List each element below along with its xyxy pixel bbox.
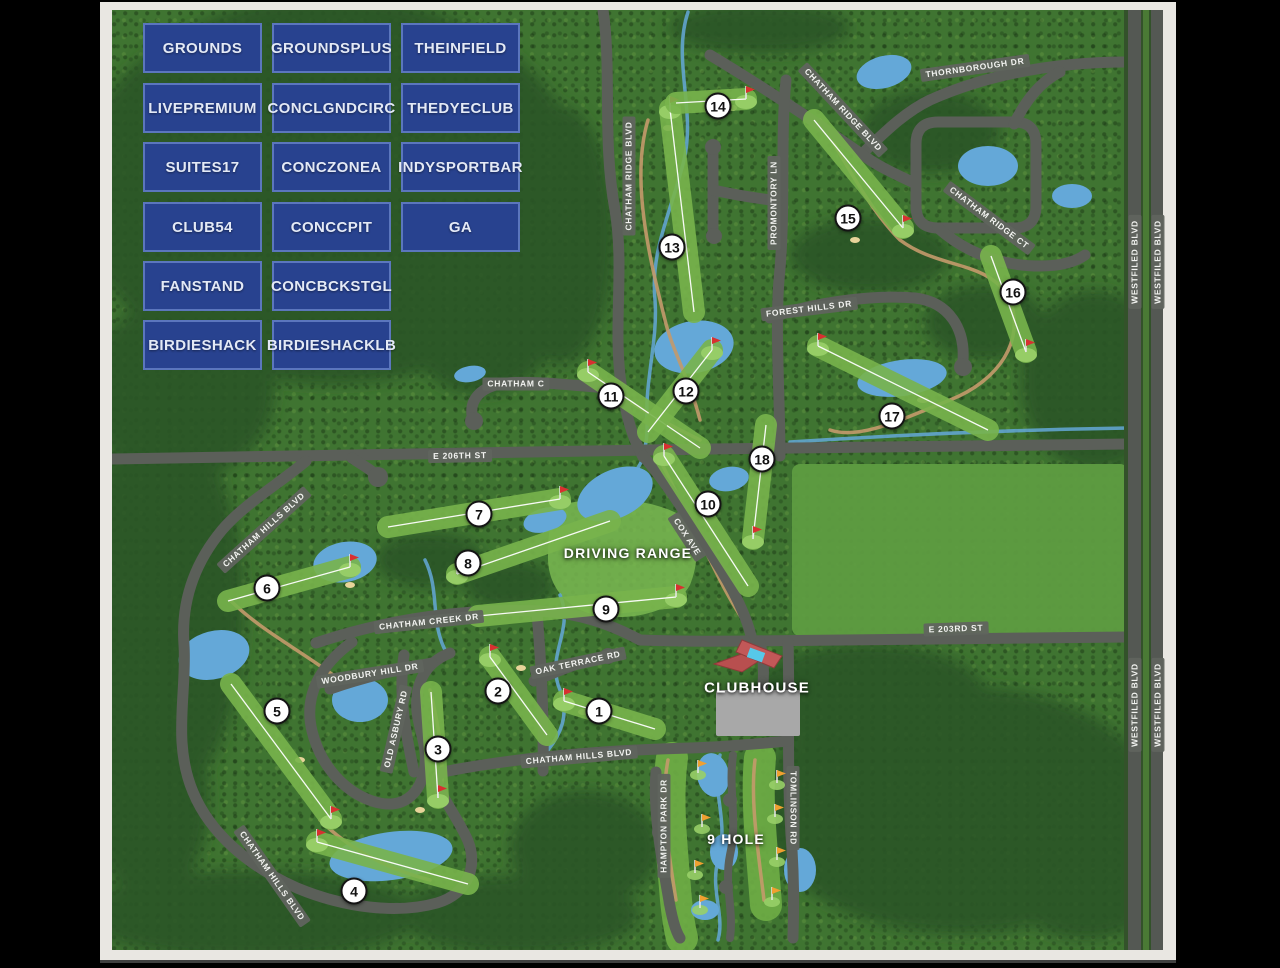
venue-button-concbckstgl[interactable]: CONCBCKSTGL	[272, 261, 391, 311]
hole-marker-5: 5	[264, 698, 291, 725]
hole-marker-13: 13	[659, 234, 686, 261]
hole-marker-3: 3	[425, 736, 452, 763]
road-label: E 203RD ST	[923, 621, 988, 636]
road-label: CHATHAM C	[482, 377, 549, 390]
page: { "page": { "background": "#000000", "fr…	[0, 0, 1280, 968]
driving-range-label: DRIVING RANGE	[564, 545, 692, 561]
hole-marker-6: 6	[254, 575, 281, 602]
course-map-graphic	[112, 10, 1163, 950]
road-label: WESTFILED BLVD	[1151, 658, 1164, 752]
venue-button-club54[interactable]: CLUB54	[143, 202, 262, 252]
road-label: WESTFILED BLVD	[1128, 215, 1141, 309]
venue-button-conczonea[interactable]: CONCZONEA	[272, 142, 391, 192]
hole-marker-12: 12	[673, 378, 700, 405]
clubhouse-label: CLUBHOUSE	[704, 680, 810, 697]
nine-hole-label: 9 HOLE	[707, 831, 765, 847]
hole-marker-9: 9	[593, 596, 620, 623]
hole-marker-11: 11	[598, 383, 625, 410]
hole-marker-7: 7	[466, 501, 493, 528]
sight-line-hole-6	[228, 567, 350, 601]
hole-marker-17: 17	[879, 403, 906, 430]
practice-field	[792, 464, 1128, 636]
flag-icon	[702, 814, 711, 821]
hole-marker-8: 8	[455, 550, 482, 577]
venue-button-suites17[interactable]: SUITES17	[143, 142, 262, 192]
venue-button-indysportbar[interactable]: INDYSPORTBAR	[401, 142, 520, 192]
venue-button-birdieshack[interactable]: BIRDIESHACK	[143, 320, 262, 370]
road-label: TOMLINSON RD	[786, 766, 799, 850]
road-label: CHATHAM RIDGE BLVD	[622, 116, 635, 235]
hole-marker-14: 14	[705, 93, 732, 120]
venue-button-birdieshacklb[interactable]: BIRDIESHACKLB	[272, 320, 391, 370]
hole-marker-4: 4	[341, 878, 368, 905]
venue-button-conccpit[interactable]: CONCCPIT	[272, 202, 391, 252]
venue-button-fanstand[interactable]: FANSTAND	[143, 261, 262, 311]
hole-marker-18: 18	[749, 446, 776, 473]
venue-button-groundsplus[interactable]: GROUNDSPLUS	[272, 23, 391, 73]
road-label: PROMONTORY LN	[767, 156, 780, 250]
road-label: HAMPTON PARK DR	[657, 774, 670, 878]
venue-button-livepremium[interactable]: LIVEPREMIUM	[143, 83, 262, 133]
venue-button-grounds[interactable]: GROUNDS	[143, 23, 262, 73]
venue-button-ga[interactable]: GA	[401, 202, 520, 252]
road-label: E 206TH ST	[428, 449, 492, 463]
venue-button-thedyeclub[interactable]: THEDYECLUB	[401, 83, 520, 133]
road-label: WESTFILED BLVD	[1151, 215, 1164, 309]
hole-marker-15: 15	[835, 205, 862, 232]
road-label: WESTFILED BLVD	[1128, 658, 1141, 752]
hole-marker-16: 16	[1000, 279, 1027, 306]
hole-marker-1: 1	[586, 698, 613, 725]
hole-marker-2: 2	[485, 678, 512, 705]
flag-icon	[695, 860, 704, 867]
westfield-blvd-roads	[1124, 10, 1163, 950]
venue-button-theinfield[interactable]: THEINFIELD	[401, 23, 520, 73]
hole-marker-10: 10	[695, 491, 722, 518]
venue-button-conclgndcirc[interactable]: CONCLGNDCIRC	[272, 83, 391, 133]
course-map	[112, 10, 1163, 950]
